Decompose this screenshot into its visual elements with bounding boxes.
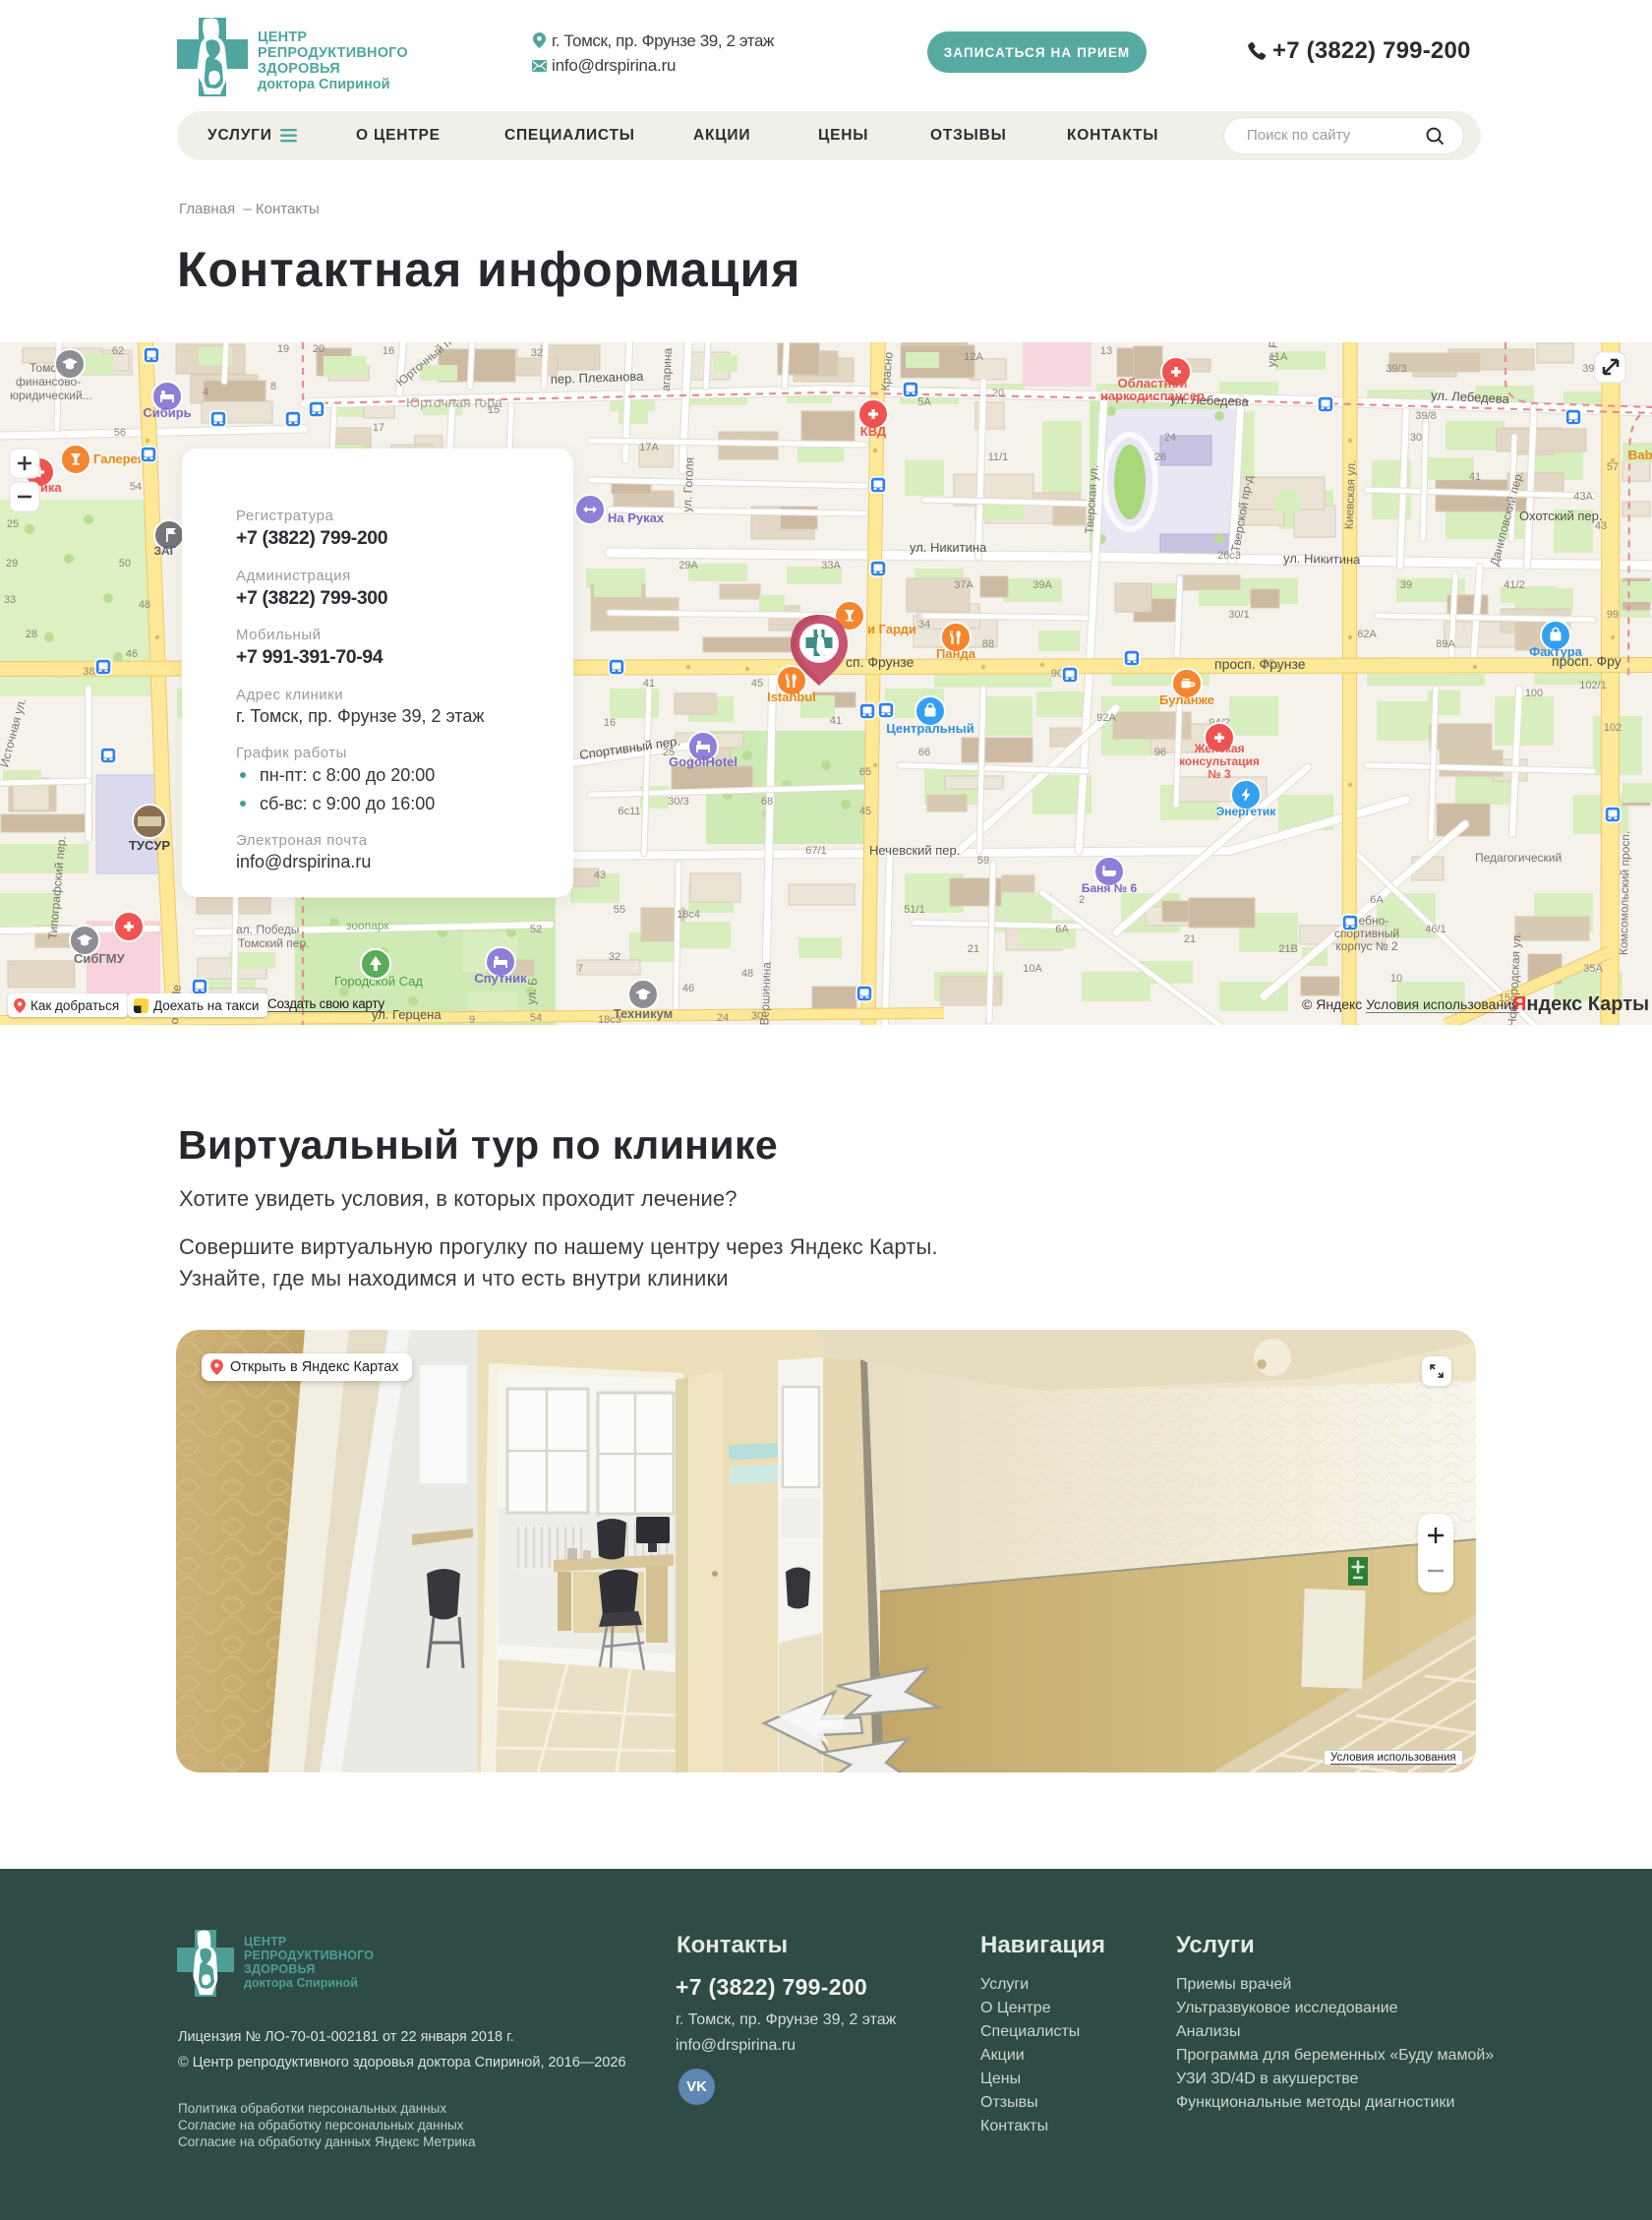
svg-text:Педагогический: Педагогический <box>1475 851 1562 865</box>
svg-text:41: 41 <box>830 715 842 727</box>
svg-text:просп. Фрунзе: просп. Фрунзе <box>1214 656 1306 672</box>
svg-text:Панда: Панда <box>936 646 976 661</box>
svg-text:30: 30 <box>1410 432 1422 444</box>
svg-text:GogolHotel: GogolHotel <box>669 754 737 769</box>
svg-text:24: 24 <box>717 1012 729 1024</box>
svg-text:6А: 6А <box>1055 924 1069 935</box>
svg-text:30/3: 30/3 <box>668 796 688 808</box>
svg-text:9: 9 <box>469 1014 475 1025</box>
svg-text:32: 32 <box>1263 658 1274 670</box>
svg-text:Сибирь: Сибирь <box>143 405 191 420</box>
svg-text:26с3: 26с3 <box>1217 550 1241 562</box>
svg-text:и Гарди: и Гарди <box>867 622 916 636</box>
svg-text:КВД: КВД <box>860 424 887 439</box>
svg-text:46: 46 <box>126 648 138 660</box>
svg-text:агарина: агарина <box>659 347 675 391</box>
svg-text:консультация: консультация <box>1179 754 1260 768</box>
svg-text:102: 102 <box>1604 722 1622 734</box>
svg-text:88: 88 <box>982 638 994 650</box>
svg-text:21: 21 <box>968 943 979 955</box>
svg-text:Энергетик: Энергетик <box>1216 805 1277 818</box>
svg-text:100: 100 <box>1525 688 1543 699</box>
svg-text:68: 68 <box>761 796 773 808</box>
svg-text:Istanbul: Istanbul <box>767 690 816 704</box>
svg-text:29: 29 <box>6 558 18 570</box>
svg-text:24: 24 <box>1164 432 1176 444</box>
svg-text:11А: 11А <box>1269 351 1288 363</box>
svg-text:6А: 6А <box>1370 894 1384 906</box>
svg-text:56: 56 <box>114 427 126 439</box>
svg-text:37А: 37А <box>954 579 973 591</box>
svg-text:сп. Фрунзе: сп. Фрунзе <box>846 654 914 670</box>
svg-text:48: 48 <box>139 599 150 611</box>
svg-text:65: 65 <box>859 766 871 778</box>
svg-text:5А: 5А <box>917 396 931 408</box>
svg-text:54: 54 <box>530 1012 542 1024</box>
svg-text:Нечевский пер.: Нечевский пер. <box>869 843 960 858</box>
svg-text:ул. Никитина: ул. Никитина <box>1283 551 1361 567</box>
svg-text:62А: 62А <box>1357 629 1377 640</box>
svg-text:наркодиспансер: наркодиспансер <box>1100 389 1205 403</box>
svg-text:18с4: 18с4 <box>677 909 700 921</box>
svg-text:46/1: 46/1 <box>1425 924 1445 935</box>
svg-text:39А: 39А <box>1032 579 1052 591</box>
svg-text:15: 15 <box>488 404 500 416</box>
svg-text:Фактура: Фактура <box>1529 644 1583 659</box>
svg-text:19: 19 <box>277 343 289 355</box>
svg-text:20: 20 <box>313 343 324 355</box>
svg-text:35А: 35А <box>1583 963 1603 975</box>
svg-text:102/1: 102/1 <box>1579 680 1607 691</box>
svg-text:48: 48 <box>741 968 753 980</box>
svg-text:Техникум: Техникум <box>614 1006 674 1021</box>
svg-text:10А: 10А <box>1023 963 1042 975</box>
svg-text:67/1: 67/1 <box>805 845 826 857</box>
svg-text:16: 16 <box>383 345 394 357</box>
svg-text:Галерея: Галерея <box>93 451 146 466</box>
svg-text:16: 16 <box>604 717 616 729</box>
svg-text:6с11: 6с11 <box>618 806 640 817</box>
svg-text:Центральный: Центральный <box>886 721 973 736</box>
svg-text:99: 99 <box>1607 609 1619 621</box>
svg-text:юридический...: юридический... <box>10 389 92 402</box>
svg-text:На Руках: На Руках <box>608 510 665 525</box>
svg-text:8: 8 <box>270 381 276 392</box>
svg-text:39/8: 39/8 <box>1415 410 1436 422</box>
svg-text:Bab: Bab <box>1628 448 1652 462</box>
svg-text:СибГМУ: СибГМУ <box>74 951 126 966</box>
svg-text:Томский пер.: Томский пер. <box>238 936 310 950</box>
svg-text:28: 28 <box>26 629 37 640</box>
svg-text:4: 4 <box>203 387 208 398</box>
svg-text:33: 33 <box>4 594 16 606</box>
svg-text:45: 45 <box>859 806 871 817</box>
svg-text:54: 54 <box>130 481 142 493</box>
svg-text:Женская: Женская <box>1193 742 1244 755</box>
svg-text:26: 26 <box>1154 451 1166 463</box>
svg-text:34: 34 <box>918 619 930 630</box>
svg-text:13: 13 <box>1100 345 1112 357</box>
svg-text:25: 25 <box>7 518 19 530</box>
svg-text:30/1: 30/1 <box>1228 609 1249 621</box>
svg-text:20: 20 <box>992 388 1004 399</box>
svg-text:ул. Никитина: ул. Никитина <box>910 540 987 555</box>
svg-text:43: 43 <box>594 870 606 881</box>
svg-text:32: 32 <box>531 347 543 359</box>
svg-text:корпус № 2: корпус № 2 <box>1335 939 1398 953</box>
svg-text:Охотский пер.: Охотский пер. <box>1519 509 1603 523</box>
svg-text:ТУСУР: ТУСУР <box>129 838 170 853</box>
svg-text:17А: 17А <box>639 442 659 453</box>
svg-text:41/2: 41/2 <box>1504 579 1524 591</box>
svg-text:55: 55 <box>614 904 625 916</box>
svg-text:41: 41 <box>643 678 655 690</box>
svg-text:32: 32 <box>609 951 620 963</box>
svg-text:ЗАГ: ЗАГ <box>154 544 177 558</box>
svg-text:Киевская ул.: Киевская ул. <box>1342 459 1358 529</box>
svg-text:Спутник: Спутник <box>474 971 527 986</box>
svg-text:ул. Гоголя: ул. Гоголя <box>680 457 697 512</box>
svg-text:10: 10 <box>1390 973 1402 985</box>
svg-text:51/1: 51/1 <box>904 904 924 916</box>
svg-text:43А: 43А <box>1573 491 1593 503</box>
svg-text:29А: 29А <box>678 560 698 571</box>
svg-text:52: 52 <box>530 924 542 935</box>
svg-text:45: 45 <box>751 678 763 690</box>
svg-text:21: 21 <box>1184 933 1196 945</box>
svg-text:92А: 92А <box>1096 712 1116 724</box>
svg-text:50: 50 <box>119 558 131 570</box>
svg-text:39/3: 39/3 <box>1386 363 1406 375</box>
svg-text:89А: 89А <box>1436 638 1455 650</box>
svg-text:7: 7 <box>577 963 583 975</box>
svg-text:11/1: 11/1 <box>988 451 1009 463</box>
svg-text:ал. Победы: ал. Победы <box>236 923 299 936</box>
svg-text:17: 17 <box>373 422 384 434</box>
svg-text:43: 43 <box>1595 520 1607 532</box>
svg-text:66: 66 <box>918 747 930 758</box>
svg-text:Баня № 6: Баня № 6 <box>1082 881 1138 895</box>
svg-text:96: 96 <box>1154 747 1166 758</box>
svg-text:59: 59 <box>977 855 989 867</box>
svg-text:21В: 21В <box>1278 943 1298 955</box>
svg-text:2: 2 <box>1079 894 1085 906</box>
svg-text:12А: 12А <box>964 351 983 363</box>
svg-text:Комсомольский просп.: Комсомольский просп. <box>1617 831 1632 956</box>
svg-text:39: 39 <box>1400 579 1412 591</box>
svg-text:зоопарк: зоопарк <box>346 919 390 932</box>
svg-text:57: 57 <box>1607 461 1619 473</box>
svg-text:№ 3: № 3 <box>1208 767 1231 781</box>
svg-text:41: 41 <box>1469 471 1481 483</box>
svg-text:62: 62 <box>112 345 124 357</box>
svg-text:33А: 33А <box>821 560 841 571</box>
svg-text:Буланже: Буланже <box>1159 692 1214 707</box>
svg-text:30: 30 <box>751 1010 763 1022</box>
svg-text:46: 46 <box>682 983 694 994</box>
